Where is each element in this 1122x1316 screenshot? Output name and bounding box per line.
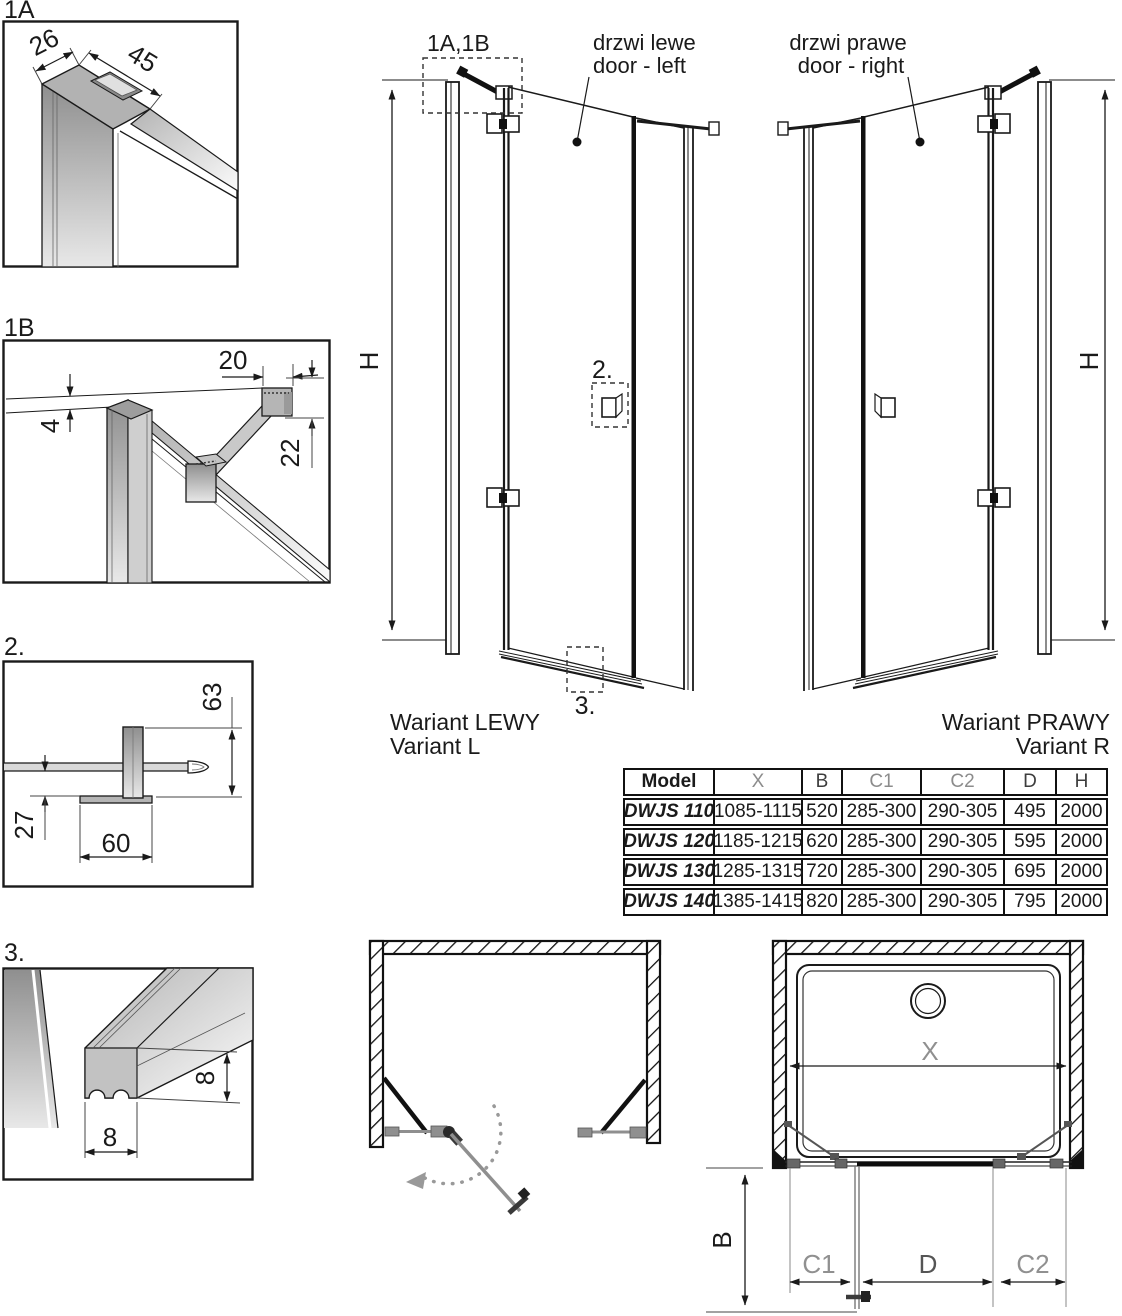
left-callout-1a1b: 1A,1B [427,30,490,56]
right-door-label-pl: drzwi prawe [789,30,906,55]
plan-dim-b: B [707,1231,737,1248]
dim-20: 20 [219,345,248,375]
plan-right-door-assembly [784,1121,1072,1309]
fixed-panel-left [384,1078,427,1133]
dim-63: 63 [197,683,227,712]
left-door-label-en: door - left [593,53,686,78]
col-header-c2: C2 [922,770,1005,794]
detail-3-callout: 3. 8 8 [0,940,258,1185]
value-x: 1185-1215 [715,830,803,854]
plan-right-extension-lines [706,1168,1066,1312]
value-d: 495 [1005,800,1057,824]
value-c1: 285-300 [843,860,922,884]
col-header-b: B [803,770,843,794]
plan-dim-d: D [919,1249,938,1279]
detail-2-label: 2. [4,633,25,661]
col-header-x: X [715,770,803,794]
value-h: 2000 [1057,800,1106,824]
value-b: 820 [803,890,843,914]
right-variant-label-pl: Wariant PRAWY [942,709,1110,735]
col-header-h: H [1057,770,1106,794]
dim-60: 60 [102,828,131,858]
dim-8-height: 8 [190,1071,220,1085]
spec-table-row-dwjs140: DWJS 140 1385-1415 820 285-300 290-305 7… [623,888,1108,916]
value-c2: 290-305 [922,830,1005,854]
left-variant-label-en: Variant L [390,733,481,759]
value-x: 1285-1315 [715,860,803,884]
col-header-c1: C1 [843,770,922,794]
value-c2: 290-305 [922,890,1005,914]
value-c1: 285-300 [843,830,922,854]
value-b: 720 [803,860,843,884]
value-d: 795 [1005,890,1057,914]
col-header-d: D [1005,770,1057,794]
value-c2: 290-305 [922,800,1005,824]
spec-table-row-dwjs120: DWJS 120 1185-1215 620 285-300 290-305 5… [623,828,1108,856]
open-door-leaf [451,1134,520,1211]
left-door-label-pl: drzwi lewe [593,30,696,55]
left-sill-callout: 3. [575,692,596,720]
dim-8-width: 8 [103,1122,117,1152]
fixed-panel-right [601,1080,645,1133]
plan-dim-c2: C2 [1016,1249,1049,1279]
col-header-model: Model [625,770,715,794]
value-d: 595 [1005,830,1057,854]
plan-dim-c1: C1 [802,1249,835,1279]
dim-22: 22 [275,439,305,468]
value-h: 2000 [1057,830,1106,854]
model-name: DWJS 110 [625,800,715,824]
value-b: 520 [803,800,843,824]
detail-2-callout: 2. 63 27 60 [0,635,258,890]
elevation-left-variant: 1A,1B drzwi lewe door - left 2. 3. H War… [365,20,735,760]
value-c1: 285-300 [843,800,922,824]
swing-direction-arrowhead [406,1172,426,1189]
left-handle-callout: 2. [592,356,613,384]
detail-3-label: 3. [4,939,25,967]
left-variant-label-pl: Wariant LEWY [390,709,540,735]
left-door-drawing [382,66,719,691]
value-c1: 285-300 [843,890,922,914]
right-door-drawing [778,66,1115,691]
spec-table: Model X B C1 C2 D H DWJS 110 1085-1115 5… [623,768,1108,918]
value-c2: 290-305 [922,860,1005,884]
value-b: 620 [803,830,843,854]
left-height-label: H [354,352,384,371]
model-name: DWJS 120 [625,830,715,854]
elevation-right-variant: drzwi prawe door - right H Wariant PRAWY… [752,20,1122,760]
value-x: 1385-1415 [715,890,803,914]
value-h: 2000 [1057,890,1106,914]
spec-table-row-dwjs110: DWJS 110 1085-1115 520 285-300 290-305 4… [623,798,1108,826]
right-door-label-en: door - right [798,53,904,78]
dim-27: 27 [9,811,39,840]
plan-dim-x: X [921,1036,938,1066]
value-d: 695 [1005,860,1057,884]
plan-view-door-swing [360,935,670,1316]
detail-1b-label: 1B [4,314,35,342]
dim-4: 4 [35,419,65,433]
model-name: DWJS 140 [625,890,715,914]
model-name: DWJS 130 [625,860,715,884]
value-h: 2000 [1057,860,1106,884]
spec-table-header-row: Model X B C1 C2 D H [623,768,1108,796]
spec-table-row-dwjs130: DWJS 130 1285-1315 720 285-300 290-305 6… [623,858,1108,886]
detail-1a-callout: 1A 26 45 [0,0,245,272]
technical-drawing-page: 1A 26 45 1B [0,0,1122,1316]
right-height-label: H [1074,352,1104,371]
right-variant-label-en: Variant R [1016,733,1110,759]
plan-view-dimensions: X B C1 D C2 [700,935,1122,1316]
value-x: 1085-1115 [715,800,803,824]
detail-1b-callout: 1B [0,318,335,585]
